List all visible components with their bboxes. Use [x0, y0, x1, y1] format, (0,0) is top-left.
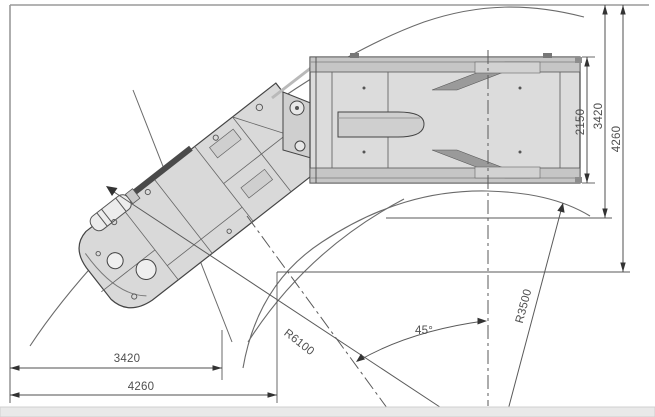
engineering-drawing: 2150 3420 4260 3420 4260 R6100 R3500 45°: [0, 0, 655, 417]
dim-bottom-outer: 4260: [128, 381, 154, 393]
drawing-canvas: 2150 3420 4260 3420 4260 R6100 R3500 45°: [0, 0, 655, 417]
dump-body: [310, 53, 582, 183]
dim-right-inner: 3420: [593, 103, 605, 129]
label-inner-radius: R3500: [514, 288, 535, 325]
dim-body-width: 2150: [575, 109, 587, 135]
dim-bottom-inner: 3420: [114, 353, 140, 365]
rear-foot: [575, 57, 582, 63]
center-spine: [338, 112, 424, 137]
label-articulation-angle: 45°: [415, 325, 433, 337]
front-axle-centerline: [247, 216, 390, 412]
tie-down: [350, 53, 359, 58]
pivot-pin: [295, 141, 305, 151]
rear-foot: [575, 177, 582, 183]
dim-right-outer: 4260: [611, 126, 623, 152]
label-outer-radius: R6100: [281, 327, 316, 358]
pivot-pin-center: [295, 106, 299, 110]
tie-down: [543, 53, 552, 58]
bottom-strip: [0, 407, 655, 417]
swept-path-arc: [248, 199, 404, 342]
